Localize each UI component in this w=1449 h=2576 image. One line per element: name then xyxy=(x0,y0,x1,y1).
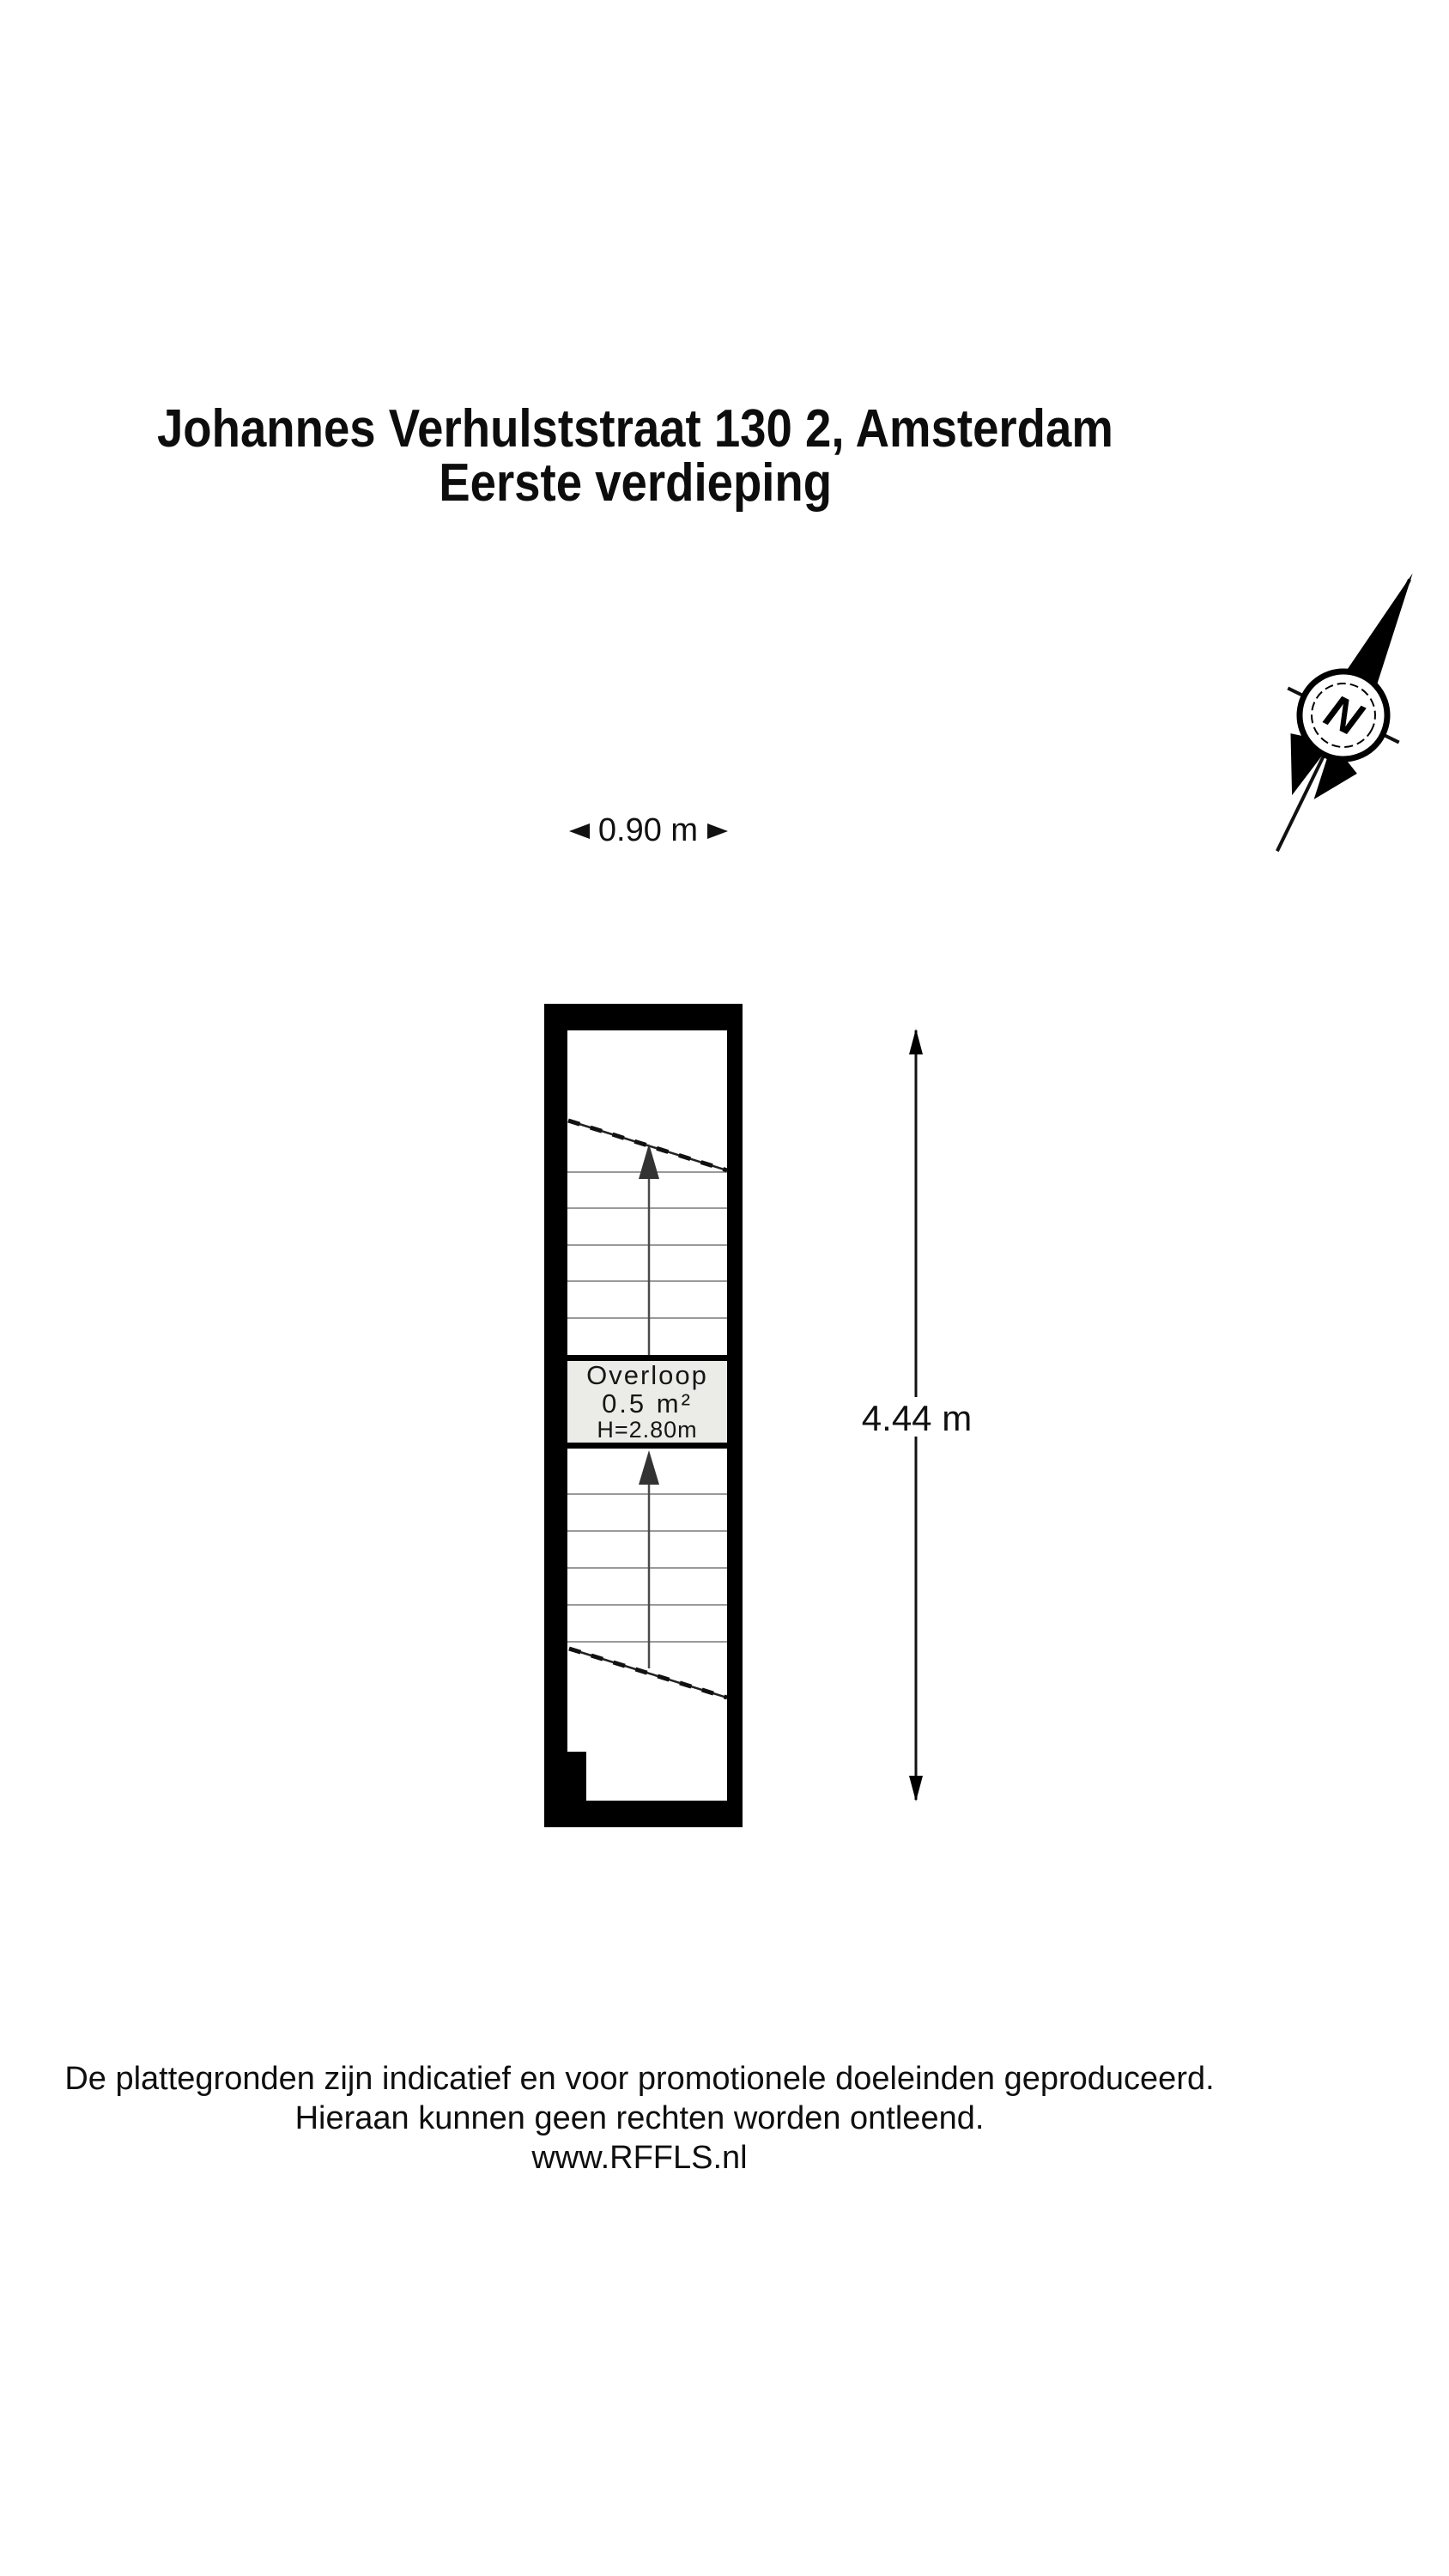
north-arrow-icon: N xyxy=(1249,552,1438,878)
room-area: 0.5 m² xyxy=(567,1389,727,1418)
website-text: www.RFFLS.nl xyxy=(4,2138,1275,2178)
room-name: Overloop xyxy=(567,1362,727,1389)
up-arrow-top xyxy=(639,1144,659,1355)
floor-plan: Overloop 0.5 m² H=2.80m xyxy=(544,1004,743,1827)
floorplan-page: Johannes Verhulststraat 130 2, Amsterdam… xyxy=(0,0,1449,2576)
width-dimension-label: 0.90 m xyxy=(567,811,730,850)
arrow-up-icon xyxy=(909,1029,923,1054)
title-address-line: Johannes Verhulststraat 130 2, Amsterdam xyxy=(0,402,1270,456)
up-arrow-bottom xyxy=(639,1450,659,1668)
disclaimer-line-2: Hieraan kunnen geen rechten worden ontle… xyxy=(4,2099,1275,2138)
title-floor-line: Eerste verdieping xyxy=(0,456,1270,510)
disclaimer-line-1: De plattegronden zijn indicatief en voor… xyxy=(4,2059,1275,2099)
page-title: Johannes Verhulststraat 130 2, Amsterdam… xyxy=(0,402,1270,510)
footer-disclaimer: De plattegronden zijn indicatief en voor… xyxy=(4,2059,1275,2178)
stair-treads-upper xyxy=(567,1172,727,1318)
arrow-down-icon xyxy=(909,1776,923,1801)
wall-notch xyxy=(567,1752,586,1801)
height-dimension-label: 4.44 m xyxy=(855,1400,979,1437)
stair-treads-lower xyxy=(567,1494,727,1642)
stairwell-interior: Overloop 0.5 m² H=2.80m xyxy=(567,1030,727,1801)
room-ceiling-height: H=2.80m xyxy=(567,1418,727,1443)
room-label-overloop: Overloop 0.5 m² H=2.80m xyxy=(567,1355,727,1449)
